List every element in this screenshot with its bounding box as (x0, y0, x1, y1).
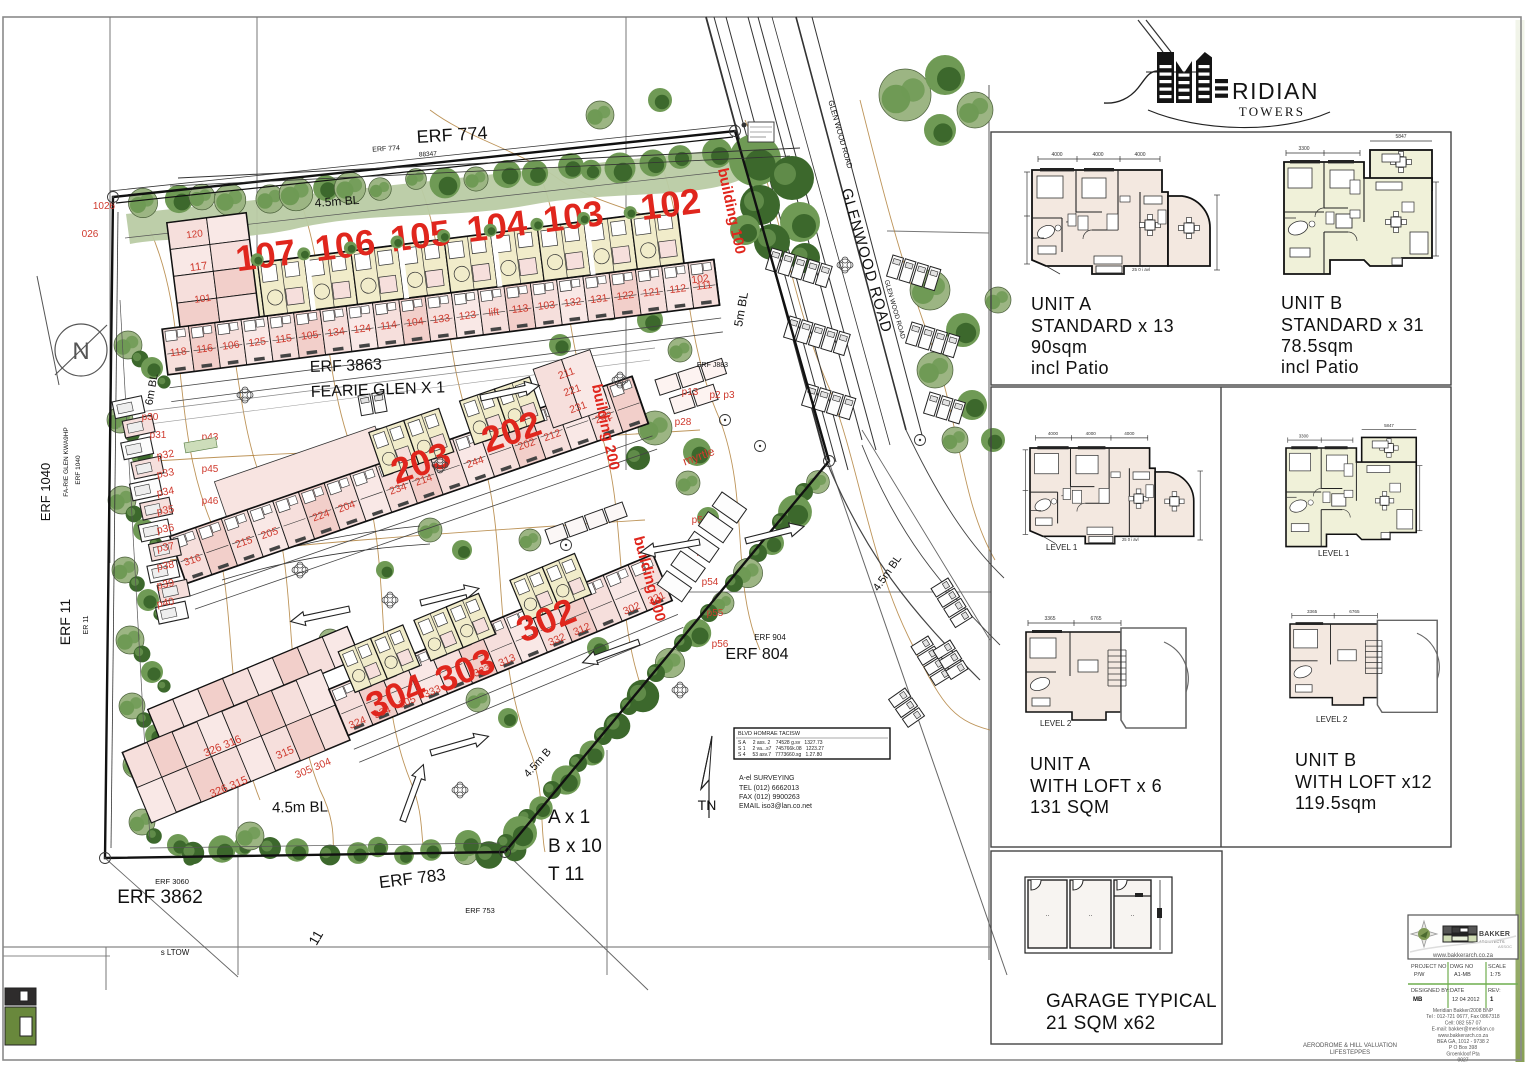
svg-text:124: 124 (353, 322, 372, 336)
svg-text:3365: 3365 (1307, 609, 1318, 614)
svg-text:114: 114 (380, 319, 398, 333)
svg-text:3300: 3300 (1298, 146, 1309, 152)
svg-text:132: 132 (563, 295, 582, 309)
svg-text:102: 102 (638, 180, 703, 228)
svg-text:ER 11: ER 11 (83, 615, 90, 634)
svg-text:ERF 3863: ERF 3863 (310, 356, 383, 376)
svg-text:p30: p30 (142, 412, 159, 423)
svg-text:A x 1: A x 1 (548, 807, 590, 828)
svg-text:s LTOW: s LTOW (161, 948, 190, 957)
svg-text:131: 131 (590, 292, 609, 306)
svg-text:..: .. (1089, 911, 1093, 918)
svg-text:106: 106 (221, 339, 240, 353)
svg-text:4000: 4000 (1048, 431, 1059, 436)
svg-text:SCALE: SCALE (1488, 964, 1506, 970)
svg-text:UNIT B: UNIT B (1281, 293, 1343, 313)
svg-text:www.bakkerarch.co.za: www.bakkerarch.co.za (1432, 953, 1494, 959)
svg-text:4.5m BL: 4.5m BL (272, 799, 328, 817)
svg-text:4000: 4000 (1134, 152, 1145, 158)
svg-text:78.5sqm: 78.5sqm (1281, 336, 1354, 356)
svg-text:incl Patio: incl Patio (1281, 357, 1359, 377)
svg-text:FAX (012) 9900263: FAX (012) 9900263 (739, 794, 800, 801)
svg-text:UNIT A: UNIT A (1031, 294, 1092, 314)
svg-text:EMAIL iso3@lan.co.net: EMAIL iso3@lan.co.net (739, 803, 812, 810)
svg-text:BAKKER: BAKKER (1479, 931, 1510, 938)
svg-text:Tel : 012-721 0677, Fax 086731: Tel : 012-721 0677, Fax 0867318 (1426, 1014, 1500, 1020)
svg-text:TN: TN (698, 797, 717, 813)
svg-text:119.5sqm: 119.5sqm (1295, 793, 1377, 813)
svg-text:3300: 3300 (1299, 433, 1309, 438)
svg-text:DWG NO: DWG NO (1450, 964, 1474, 970)
svg-text:LEVEL 1: LEVEL 1 (1318, 549, 1350, 558)
svg-text:4000: 4000 (1086, 431, 1097, 436)
svg-text:LIFESTEPPES: LIFESTEPPES (1330, 1050, 1370, 1056)
svg-text:5847: 5847 (1384, 423, 1394, 428)
svg-text:104: 104 (406, 315, 425, 329)
svg-text:4000: 4000 (1124, 431, 1135, 436)
svg-text:ERF 3060: ERF 3060 (155, 877, 189, 886)
svg-text:121: 121 (642, 285, 661, 299)
svg-text:Meridian Bakker/2008 BNP: Meridian Bakker/2008 BNP (1433, 1008, 1494, 1014)
svg-text:25 0 i avl: 25 0 i avl (1132, 267, 1150, 272)
svg-text:103: 103 (541, 192, 606, 240)
svg-text:GARAGE TYPICAL: GARAGE TYPICAL (1046, 991, 1217, 1012)
svg-text:B x 10: B x 10 (548, 836, 602, 857)
svg-text:120: 120 (186, 228, 204, 241)
svg-text:REV:: REV: (1488, 988, 1501, 994)
svg-text:ERF 804: ERF 804 (725, 646, 788, 663)
svg-text:102: 102 (691, 272, 710, 286)
svg-text:E-mail: bakker@meridian.co: E-mail: bakker@meridian.co (1432, 1027, 1495, 1033)
svg-text:P O Box 398: P O Box 398 (1449, 1045, 1477, 1051)
svg-text:www.bakkerarch.co.za: www.bakkerarch.co.za (1438, 1033, 1488, 1039)
svg-text:DESIGNED BY:: DESIGNED BY: (1411, 988, 1450, 994)
svg-text:ASSOC: ASSOC (1498, 944, 1512, 949)
svg-text:ERF 1040: ERF 1040 (38, 463, 53, 522)
svg-text:026: 026 (82, 229, 99, 240)
svg-text:103: 103 (537, 299, 556, 313)
svg-text:Cell: 082 557 07: Cell: 082 557 07 (1445, 1020, 1482, 1026)
svg-text:FA-RIE GLEN KWA9HP: FA-RIE GLEN KWA9HP (63, 427, 70, 496)
svg-text:116: 116 (196, 342, 214, 356)
svg-text:WITH LOFT x 6: WITH LOFT x 6 (1030, 776, 1162, 796)
svg-text:Groenkloof Pta: Groenkloof Pta (1446, 1051, 1480, 1057)
svg-text:21 SQM x62: 21 SQM x62 (1046, 1013, 1156, 1034)
svg-text:STANDARD x 13: STANDARD x 13 (1031, 316, 1174, 336)
svg-text:lift: lift (488, 306, 500, 319)
svg-text:118: 118 (169, 345, 187, 359)
svg-text:A-el SURVEYING: A-el SURVEYING (739, 775, 795, 782)
svg-text:P/W: P/W (1414, 972, 1425, 978)
svg-text:101: 101 (194, 293, 212, 306)
svg-text:4000: 4000 (1092, 152, 1103, 158)
svg-text:p13: p13 (682, 387, 699, 398)
svg-text:ERF 3862: ERF 3862 (117, 887, 203, 908)
svg-text:4000: 4000 (1051, 152, 1062, 158)
svg-text:BEA GA, 1012 - 9738 2: BEA GA, 1012 - 9738 2 (1437, 1039, 1489, 1045)
svg-text:6765: 6765 (1349, 609, 1360, 614)
svg-text:STANDARD x 31: STANDARD x 31 (1281, 315, 1424, 335)
svg-text:112: 112 (669, 282, 687, 296)
svg-text:p2 p3: p2 p3 (709, 390, 734, 401)
svg-text:..: .. (1046, 911, 1050, 918)
svg-text:88347: 88347 (419, 150, 438, 158)
svg-text:122: 122 (616, 289, 635, 303)
svg-text:p46: p46 (202, 496, 219, 507)
svg-text:LEVEL 2: LEVEL 2 (1316, 715, 1348, 724)
svg-text:p45: p45 (202, 464, 219, 475)
svg-text:AERODROME & HILL VALUATION: AERODROME & HILL VALUATION (1303, 1043, 1397, 1049)
svg-text:125: 125 (248, 335, 267, 349)
svg-text:ERF 11: ERF 11 (57, 599, 73, 646)
svg-text:DATE: DATE (1450, 988, 1465, 994)
svg-text:LEVEL 2: LEVEL 2 (1040, 719, 1072, 728)
svg-text:115: 115 (274, 332, 292, 346)
svg-text:ERF J883: ERF J883 (697, 362, 728, 369)
svg-text:90sqm: 90sqm (1031, 337, 1088, 357)
svg-text:UNIT A: UNIT A (1030, 754, 1091, 774)
svg-text:TEL (012) 6662013: TEL (012) 6662013 (739, 785, 799, 792)
svg-text:N: N (72, 338, 89, 365)
svg-text:BLVD HOMRAE TACISW: BLVD HOMRAE TACISW (738, 731, 801, 737)
svg-text:LEVEL 1: LEVEL 1 (1046, 543, 1078, 552)
svg-text:117: 117 (189, 260, 208, 274)
svg-text:0027: 0027 (1457, 1058, 1468, 1064)
svg-text:PROJECT NO: PROJECT NO (1411, 964, 1447, 970)
svg-text:3365: 3365 (1044, 616, 1055, 622)
svg-text:134: 134 (327, 325, 346, 339)
svg-text:ERF 753: ERF 753 (465, 906, 495, 915)
svg-text:WITH LOFT x12: WITH LOFT x12 (1295, 772, 1432, 792)
svg-text:1:75: 1:75 (1490, 972, 1501, 978)
svg-text:A1-MB: A1-MB (1454, 972, 1471, 978)
svg-text:5847: 5847 (1395, 134, 1406, 140)
svg-text:ERF 1040: ERF 1040 (75, 455, 82, 485)
svg-text:25 0 i avl: 25 0 i avl (1122, 537, 1139, 542)
svg-text:S 4 53 asv.7 7773660.sg: S 4 53 asv.7 7773660.sg 1.27.80 (738, 752, 822, 758)
svg-text:p31: p31 (150, 430, 167, 441)
svg-text:UNIT B: UNIT B (1295, 750, 1357, 770)
svg-text:ERF 904: ERF 904 (754, 633, 786, 642)
svg-text:T 11: T 11 (548, 864, 584, 885)
svg-text:p54: p54 (702, 577, 719, 588)
svg-text:p55: p55 (707, 608, 724, 619)
svg-text:131 SQM: 131 SQM (1030, 797, 1110, 817)
svg-text:6765: 6765 (1090, 616, 1101, 622)
svg-text:..: .. (1131, 911, 1135, 918)
svg-text:113: 113 (511, 302, 529, 316)
svg-text:12 04 2012: 12 04 2012 (1452, 997, 1480, 1003)
svg-text:107: 107 (233, 231, 298, 279)
svg-text:123: 123 (458, 309, 477, 323)
svg-text:RIDIAN: RIDIAN (1232, 78, 1319, 104)
svg-text:MB: MB (1413, 997, 1423, 1003)
svg-text:105: 105 (300, 329, 319, 343)
svg-text:p28: p28 (675, 417, 692, 428)
svg-text:133: 133 (432, 312, 451, 326)
svg-text:incl Patio: incl Patio (1031, 358, 1109, 378)
svg-text:TOWERS: TOWERS (1239, 104, 1305, 119)
